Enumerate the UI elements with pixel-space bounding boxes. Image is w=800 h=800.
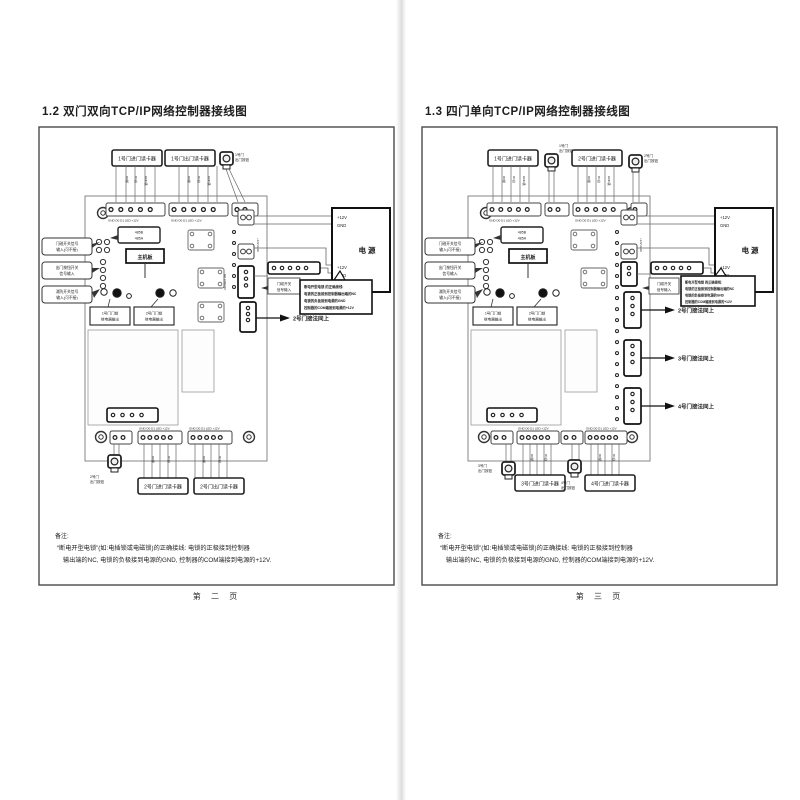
wire-label: D0绿 — [530, 454, 535, 461]
wire-label: GND黑 — [607, 176, 611, 186]
power-pin: +12V — [337, 215, 347, 220]
inner-label-line: 1号门门锁 — [102, 311, 119, 316]
reader-label: 1号门进门读卡器 — [118, 156, 156, 163]
reader-label: 2号门进门读卡器 — [144, 484, 182, 491]
note-heading: 备注: — [55, 532, 69, 540]
lock-pin-label: NO COM NC — [223, 274, 227, 290]
inner-label-line: 继电器输出 — [484, 317, 502, 322]
wire-label: D1白 — [597, 176, 602, 183]
page-divider — [396, 0, 406, 800]
callout-line: 消防开关信号 — [56, 289, 79, 294]
power-pin: GND — [720, 223, 729, 228]
callout-line: 输入(可不接) — [56, 247, 78, 252]
wire-label: D1白 — [544, 454, 549, 461]
page-number-left: 第 二 页 — [38, 591, 396, 602]
pin-row-label: GND D0 D1 LED +12V — [518, 427, 549, 431]
pin-row-label: GND D0 D1 LED +12V — [586, 427, 617, 431]
wire-label: D1白 — [197, 176, 202, 183]
wire-label: D0绿 — [587, 176, 592, 183]
sensor-line: 门磁开关 — [277, 281, 292, 286]
reader-label: 2号门出门读卡器 — [200, 484, 238, 491]
lock-terminal-strip — [268, 262, 320, 274]
pin-header-line: 485A — [135, 237, 144, 241]
callout-line: 门磁开关信号 — [56, 241, 79, 246]
sensor-line: 门磁开关 — [657, 281, 672, 286]
pin-row-label: GND D0 D1 LED +12V — [575, 219, 606, 223]
note-line: 输出端的NC, 电锁的负极接到电源的GND, 控制器的COM端接到电源的+12V… — [63, 556, 272, 564]
callout-line: 出门按钮开关 — [56, 265, 79, 270]
wire-label: GND黑 — [144, 176, 148, 186]
button-label-line: 出门按钮 — [644, 158, 658, 163]
pin-row-label: GND D0 D1 LED +12V — [108, 219, 139, 223]
inner-label-line: 继电器输出 — [528, 317, 546, 322]
page-title-right: 1.3 四门单向TCP/IP网络控制器接线图 — [425, 103, 630, 119]
top-reader-2: 2号门进门读卡器 D0绿 D1白 GND黑 — [572, 150, 622, 202]
rs485-callout: 485B 485A — [110, 227, 160, 243]
note-block: 备注: “断电开型电锁”(如:电插锁或电磁锁)的正确接线: 电锁的正极接到控制器… — [55, 532, 272, 564]
left-callouts: 门磁开关信号 输入(可不接) 出门按钮开关 信号输入 消防开关信号 输入(可不接… — [42, 238, 100, 303]
button-label-line: 4号门 — [561, 480, 570, 485]
wire-label: D0绿 — [151, 456, 156, 463]
top-reader-2: 1号门出门读卡器 D0绿 D1白 GND黑 — [165, 150, 217, 202]
callout-line: 门磁开关信号 — [439, 241, 462, 246]
power-pin-label: +12V GND — [256, 238, 260, 252]
note-line: “断电开型电锁”(如:电插锁或电磁锁)的正确接线: 电锁的正极接到控制器 — [440, 544, 634, 552]
page-number-right: 第 三 页 — [421, 591, 779, 602]
door4-group: 4号门接法同上 — [624, 388, 715, 424]
button-label-line: 3号门 — [478, 463, 487, 468]
button-label-line: 出门按钮 — [561, 485, 575, 490]
callout-line: 输入(可不接) — [439, 247, 461, 252]
pin-row-label: GND D0 D1 LED +12V — [171, 219, 202, 223]
button-label-line: 1号门 — [559, 143, 568, 148]
note-line: 输出端的NC, 电锁的负极接到电源的GND, 控制器的COM端接到电源的+12V… — [446, 556, 655, 564]
button-label-line: 出门按钮 — [235, 157, 249, 162]
top-reader-1: 1号门进门读卡器 D0绿 D1白 GND黑 — [112, 150, 162, 202]
arrow-label: 4号门接法同上 — [678, 403, 715, 411]
left-callouts: 门磁开关信号 输入(可不接) 出门按钮开关 信号输入 消防开关信号 输入(可不接… — [425, 238, 483, 303]
reader-label: 4号门进门读卡器 — [591, 481, 629, 488]
power-pin: +12V — [720, 215, 730, 220]
power-pin: GND — [337, 223, 346, 228]
exit-button-1: 1号门 出门按钮 — [545, 143, 573, 202]
power-title: 电 源 — [741, 245, 759, 255]
wire-label: D0绿 — [125, 176, 130, 183]
power-pin-label: +12V GND — [639, 238, 643, 252]
wire-label: GND黑 — [522, 176, 526, 186]
wiring-diagram-two-door: GND D0 D1 LED +12V GND D0 D1 LED +12V 48… — [38, 126, 396, 586]
wire-label: D0绿 — [502, 176, 507, 183]
bottom-bold-strip — [107, 408, 158, 422]
warning-line: 断电开型电锁 的正确接线: — [685, 280, 722, 285]
power-pin: +12V — [337, 265, 347, 270]
arrow-label: 3号门接法同上 — [678, 355, 715, 363]
callout-line: 输入(可不接) — [56, 295, 78, 300]
inner-label-line: 继电器输出 — [145, 317, 163, 322]
note-heading: 备注: — [438, 532, 452, 540]
button-label-line: 2号门 — [644, 153, 653, 158]
warning-line: 控制器的COM端接到电源的+12V — [685, 299, 733, 304]
warning-line: 断电开型电锁 的正确接线: — [304, 284, 343, 289]
inner-label-line: 2号门门锁 — [529, 311, 546, 316]
terminal-strip — [106, 203, 258, 216]
wire-label: D0绿 — [202, 456, 207, 463]
wire-label: D0绿 — [598, 454, 603, 461]
button-label-line: 2号门 — [90, 474, 99, 479]
callout-line: 信号输入 — [59, 271, 74, 276]
arrow-label: 2号门接法同上 — [678, 307, 715, 315]
arrow-label: 2号门接法同上 — [293, 315, 330, 323]
inner-label-line: 1号门门锁 — [485, 311, 502, 316]
wire-label: D1白 — [134, 176, 139, 183]
callout-line: 信号输入 — [442, 271, 457, 276]
wire-label: GND黑 — [207, 176, 211, 186]
warning-line: 电锁的正极接到控制器输出端的NC — [304, 291, 357, 296]
button-label-line: 出门按钮 — [90, 479, 104, 484]
wire-label: D1白 — [512, 176, 517, 183]
reader-label: 3号门进门读卡器 — [521, 481, 559, 488]
note-block: 备注: “断电开型电锁”(如:电插锁或电磁锁)的正确接线: 电锁的正极接到控制器… — [438, 532, 655, 564]
warning-line: 电锁的负极接到电源的GND — [304, 298, 346, 303]
reader-label: 1号门进门读卡器 — [494, 156, 532, 163]
page-title-left: 1.2 双门双向TCP/IP网络控制器接线图 — [42, 103, 247, 119]
reader-label: 1号门出门读卡器 — [171, 156, 209, 163]
pin-row-label: GND D0 D1 LED +12V — [489, 219, 520, 223]
wire-label: D0绿 — [187, 176, 192, 183]
door3-group: 3号门接法同上 — [624, 340, 715, 376]
power-title: 电 源 — [358, 245, 376, 255]
wire-label: D1白 — [167, 456, 172, 463]
warning-line: 电锁的正极接到控制器输出端的NC — [685, 286, 735, 291]
bottom-bold-strip — [487, 408, 537, 422]
inner-label-line: 2号门门锁 — [146, 311, 163, 316]
button-label-line: 出门按钮 — [478, 468, 492, 473]
sensor-line: 信号输入 — [277, 287, 292, 292]
sensor-line: 信号输入 — [657, 287, 672, 292]
warning-line: 电锁的负极接到电源的GND — [685, 293, 725, 298]
inner-label-line: 继电器输出 — [101, 317, 119, 322]
board-label-text: 主机板 — [520, 254, 536, 261]
rs485-callout: 485B 485A — [493, 227, 543, 243]
component-area — [182, 330, 214, 392]
wire-label: D1白 — [218, 456, 223, 463]
button-label-line: 1号门 — [235, 152, 244, 157]
top-reader-1: 1号门进门读卡器 D0绿 D1白 GND黑 — [488, 150, 538, 202]
pin-header-line: 485B — [135, 231, 144, 235]
note-line: “断电开型电锁”(如:电插锁或电磁锁)的正确接线: 电锁的正极接到控制器 — [57, 544, 251, 552]
board-label-text: 主机板 — [137, 254, 153, 261]
callout-line: 输入(可不接) — [439, 295, 461, 300]
pin-row-label: GND D0 D1 LED +12V — [139, 427, 170, 431]
pin-header-line: 485B — [518, 231, 527, 235]
wiring-diagram-four-door: GND D0 D1 LED +12V GND D0 D1 LED +12V 48… — [421, 126, 779, 586]
wire-label: D1白 — [612, 454, 617, 461]
exit-button-2: 2号门 出门按钮 — [629, 153, 658, 202]
pin-row-label: GND D0 D1 LED +12V — [189, 427, 220, 431]
callout-line: 消防开关信号 — [439, 289, 462, 294]
warning-line: 控制器的COM端接到电源的+12V — [304, 305, 355, 310]
pin-header-line: 485A — [518, 237, 527, 241]
callout-line: 出门按钮开关 — [439, 265, 462, 270]
exit-button-top: 1号门 出门按钮 — [220, 152, 249, 202]
component-area — [565, 330, 597, 392]
reader-label: 2号门进门读卡器 — [578, 156, 616, 163]
lock-terminal-strip — [651, 262, 703, 274]
